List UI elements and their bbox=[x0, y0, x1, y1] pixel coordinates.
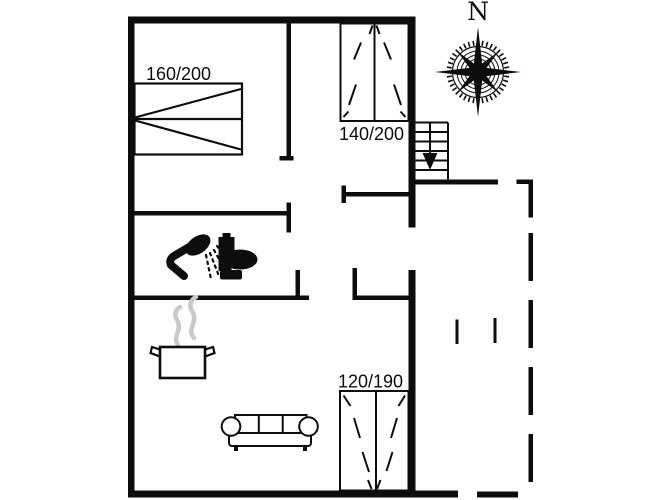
compass-rose-icon bbox=[435, 27, 521, 117]
wall-living-top-right bbox=[353, 296, 409, 301]
terrace-opening-mark-right bbox=[494, 318, 497, 343]
compass-north-label: N bbox=[467, 0, 489, 26]
wall-right-lower bbox=[409, 270, 416, 498]
sofa-base bbox=[229, 433, 311, 446]
steam-icon bbox=[175, 297, 196, 345]
compass-star-cardinal bbox=[435, 27, 521, 117]
terrace-wall-top bbox=[416, 180, 499, 185]
double-bed-icon bbox=[135, 84, 243, 155]
terrace-corner-vertical bbox=[529, 180, 534, 218]
sofa-icon bbox=[222, 415, 318, 451]
wall-bedroom2-bottom bbox=[342, 192, 409, 197]
sofa-foot-right bbox=[303, 445, 307, 451]
bed-120x190-icon bbox=[340, 391, 409, 491]
sofa-arm-left bbox=[222, 417, 241, 436]
sofa-arm-right bbox=[299, 417, 318, 436]
toilet-icon bbox=[219, 233, 258, 280]
wall-bedroom1-right bbox=[287, 24, 292, 161]
stairs-down-arrow-icon bbox=[416, 123, 449, 182]
terrace-opening-mark-left bbox=[456, 320, 459, 345]
upper-bed-size-label: 140/200 bbox=[339, 124, 404, 144]
wall-bathroom-door-jamb-upper bbox=[287, 203, 292, 233]
bed-140x200-icon bbox=[341, 24, 409, 122]
wall-top bbox=[128, 17, 416, 24]
floor-plan: 160/200 140/200 120/190 bbox=[0, 0, 667, 500]
wall-bedroom2-bottom-endcap bbox=[342, 186, 347, 204]
master-bed-size-label: 160/200 bbox=[146, 64, 211, 84]
cooking-pot-icon bbox=[151, 347, 215, 378]
sofa-foot-left bbox=[234, 445, 238, 451]
wall-bathroom-top bbox=[135, 211, 292, 216]
wall-right-upper bbox=[409, 17, 416, 228]
terrace-dashed-bottom-segment bbox=[477, 492, 518, 498]
wall-bathroom-door-jamb-lower bbox=[296, 270, 301, 300]
sofa-cushions bbox=[235, 415, 307, 433]
wall-bedroom1-right-endcap bbox=[280, 156, 294, 161]
wall-bathroom-bottom bbox=[135, 296, 310, 301]
lower-bed-size-label: 120/190 bbox=[338, 372, 403, 392]
wall-living-top-right-endcap bbox=[353, 268, 358, 300]
terrace-boundary bbox=[416, 180, 534, 498]
